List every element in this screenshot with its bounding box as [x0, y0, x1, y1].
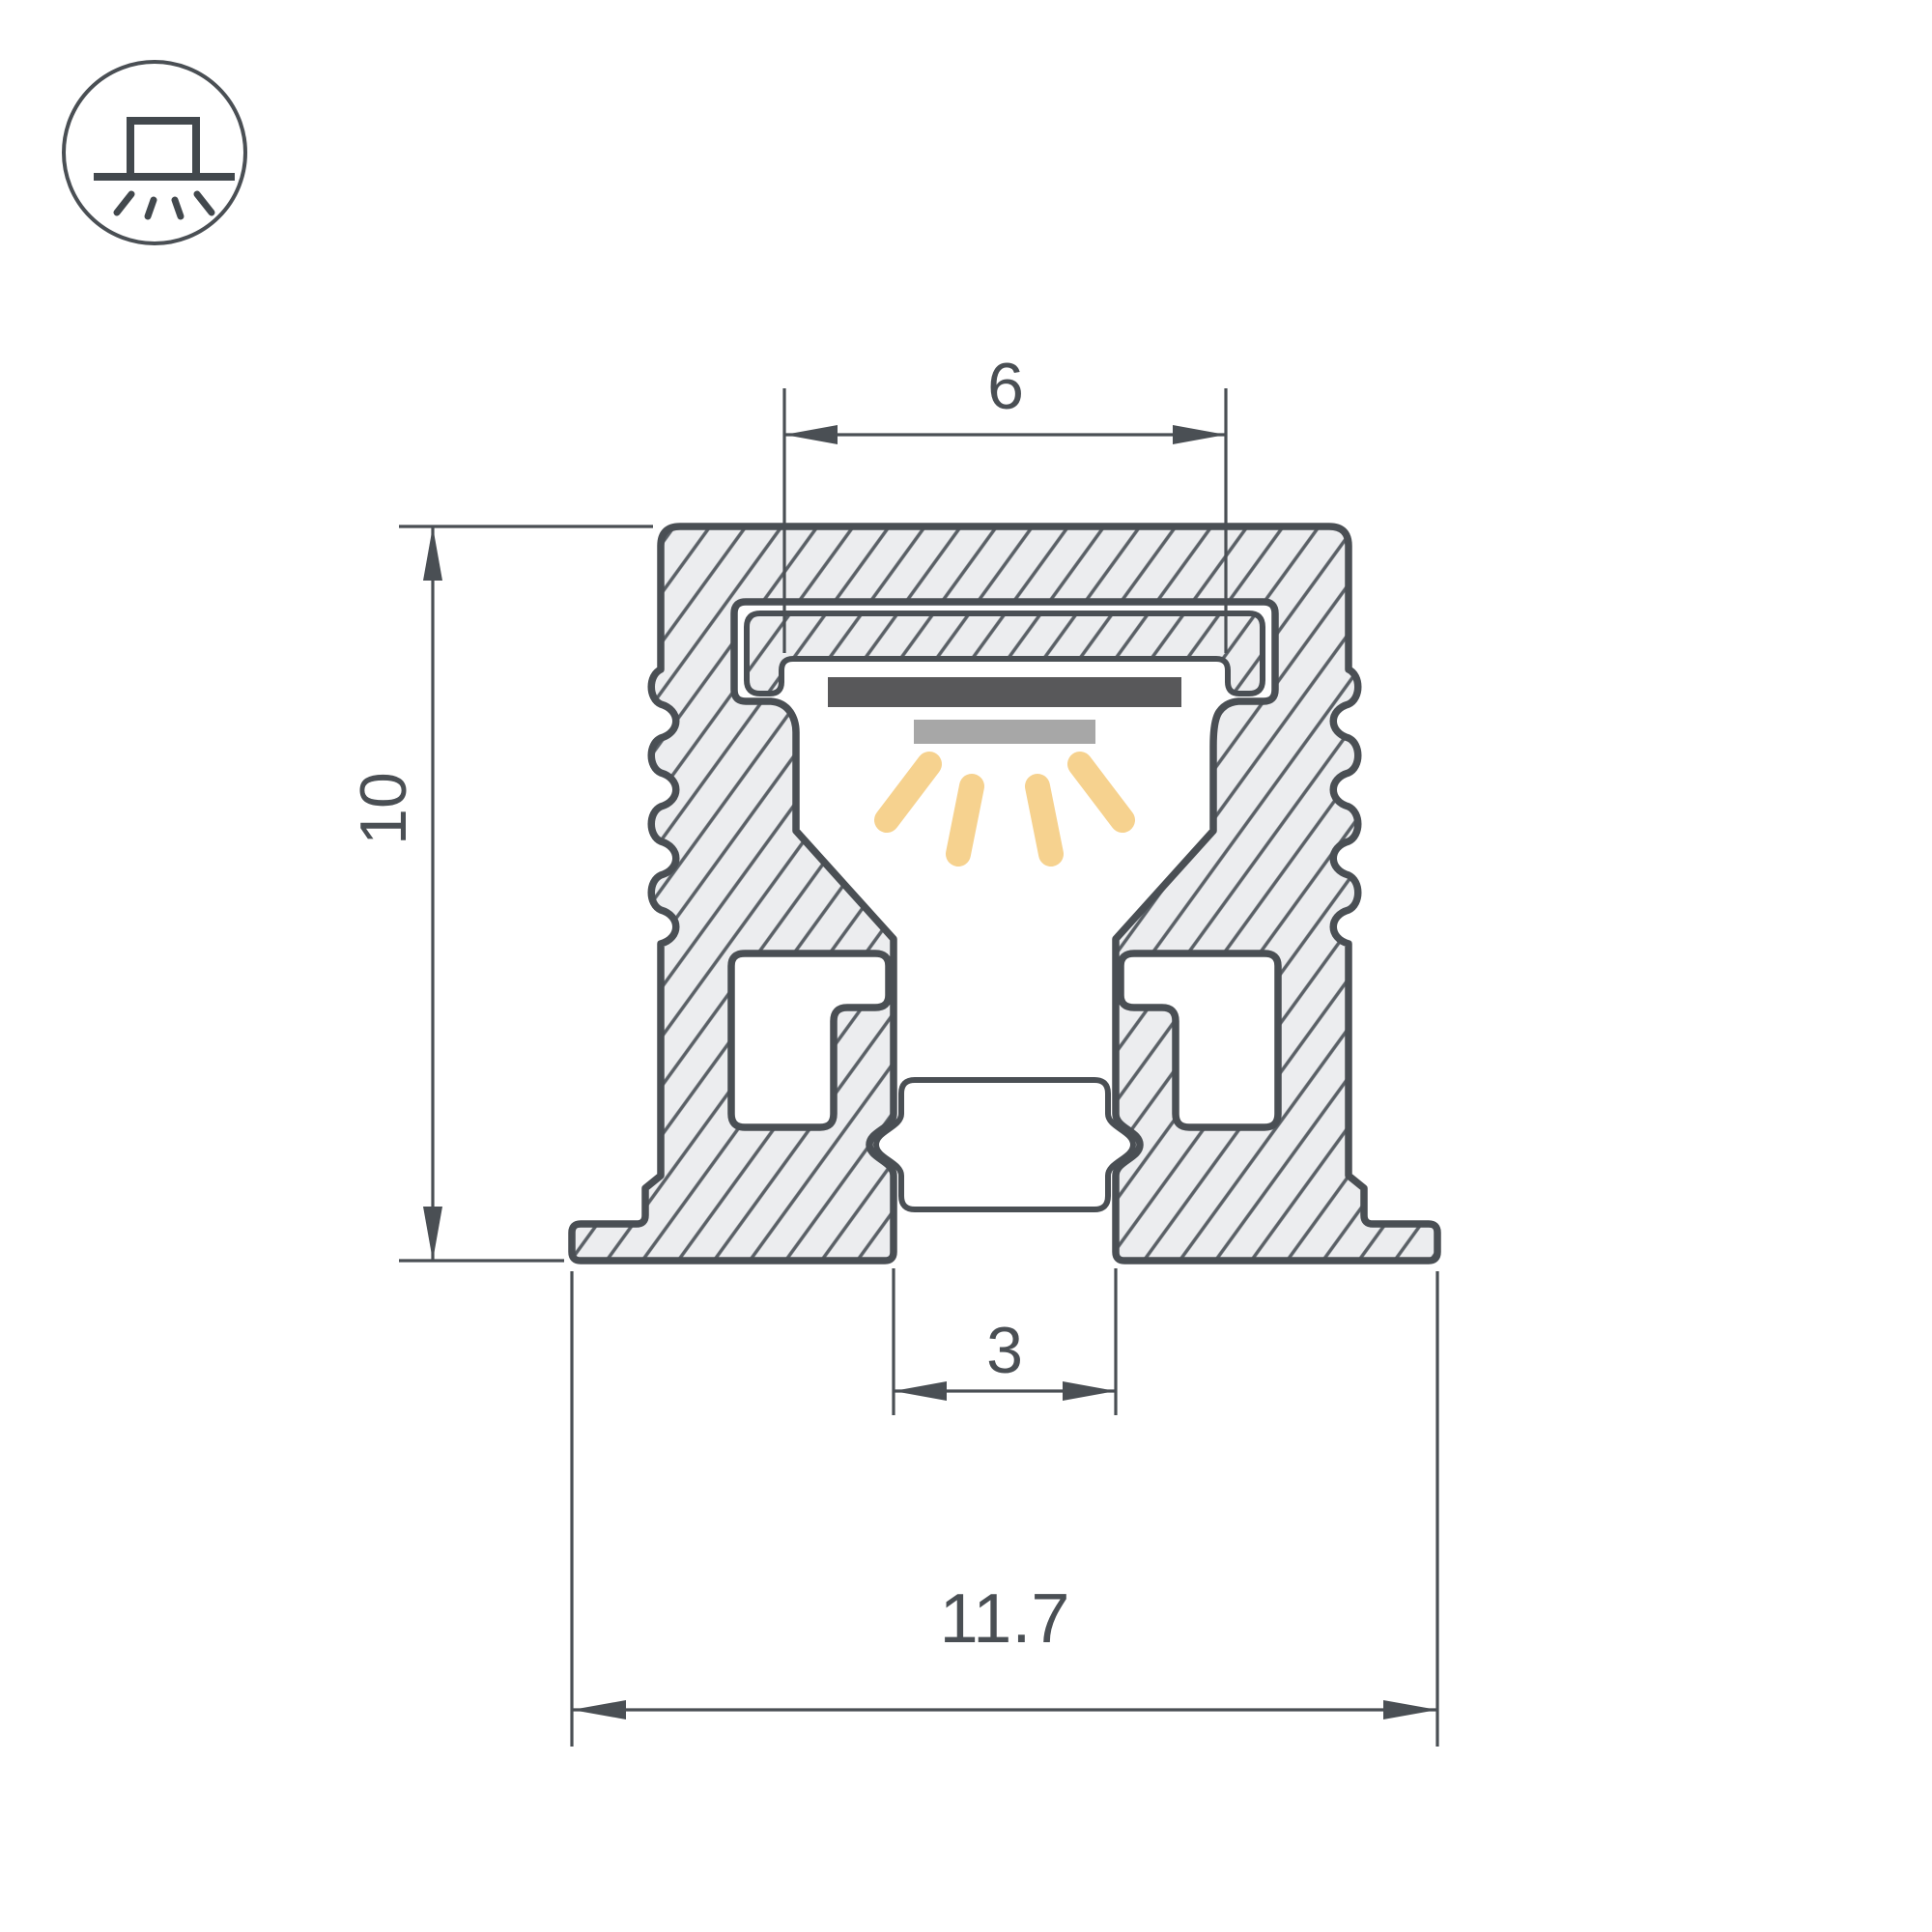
icon-fixture-glyph: [94, 121, 235, 177]
arrowhead-left-icon: [784, 425, 838, 444]
arrowhead-left-icon: [894, 1381, 947, 1401]
arrowhead-right-icon: [1383, 1700, 1437, 1719]
arrowhead-up-icon: [423, 526, 442, 581]
arrowhead-left-icon: [572, 1700, 626, 1719]
profile-cross-section: [572, 526, 1437, 1261]
led-emitter: [914, 720, 1095, 744]
technical-drawing-page: 6 10 3 11.7: [0, 0, 1932, 1932]
icon-light-rays: [117, 194, 212, 216]
light-ray: [958, 786, 972, 854]
arrowhead-down-icon: [423, 1207, 442, 1261]
icon-circle: [64, 62, 245, 243]
dim-label-overall-width: 11.7: [940, 1580, 1070, 1658]
arrowhead-right-icon: [1063, 1381, 1116, 1401]
dim-label-height: 10: [347, 772, 420, 845]
light-ray: [1037, 786, 1051, 854]
surface-mount-light-down-icon: [64, 62, 245, 243]
dim-label-bottom-slot: 3: [986, 1314, 1023, 1387]
light-ray: [887, 764, 929, 820]
light-rays: [887, 764, 1122, 854]
led-strip-pcb: [828, 677, 1181, 707]
dimension-height: [399, 526, 653, 1261]
profile-drawing-canvas: 6 10 3 11.7: [0, 0, 1932, 1932]
light-ray: [1080, 764, 1122, 820]
mounting-chamber: [876, 1080, 1133, 1209]
dim-label-top-width: 6: [987, 350, 1024, 423]
arrowhead-right-icon: [1173, 425, 1226, 444]
